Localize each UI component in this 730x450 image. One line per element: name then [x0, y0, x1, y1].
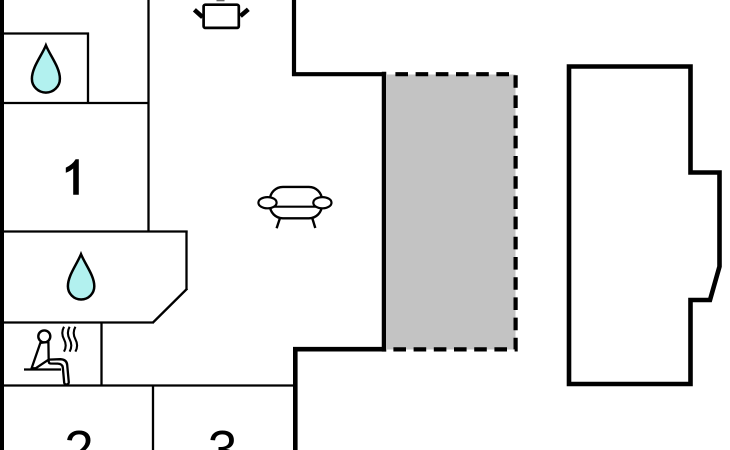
- svg-text:2: 2: [64, 421, 93, 450]
- svg-text:3: 3: [208, 421, 237, 450]
